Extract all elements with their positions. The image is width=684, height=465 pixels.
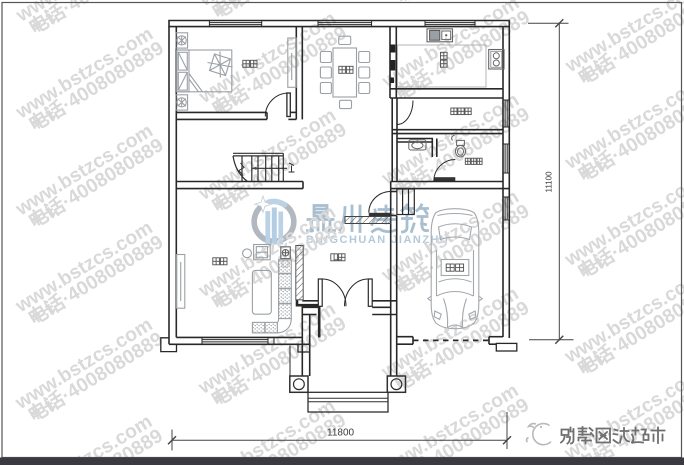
- svg-text:11100: 11100: [545, 171, 554, 193]
- svg-text:11800: 11800: [327, 428, 355, 439]
